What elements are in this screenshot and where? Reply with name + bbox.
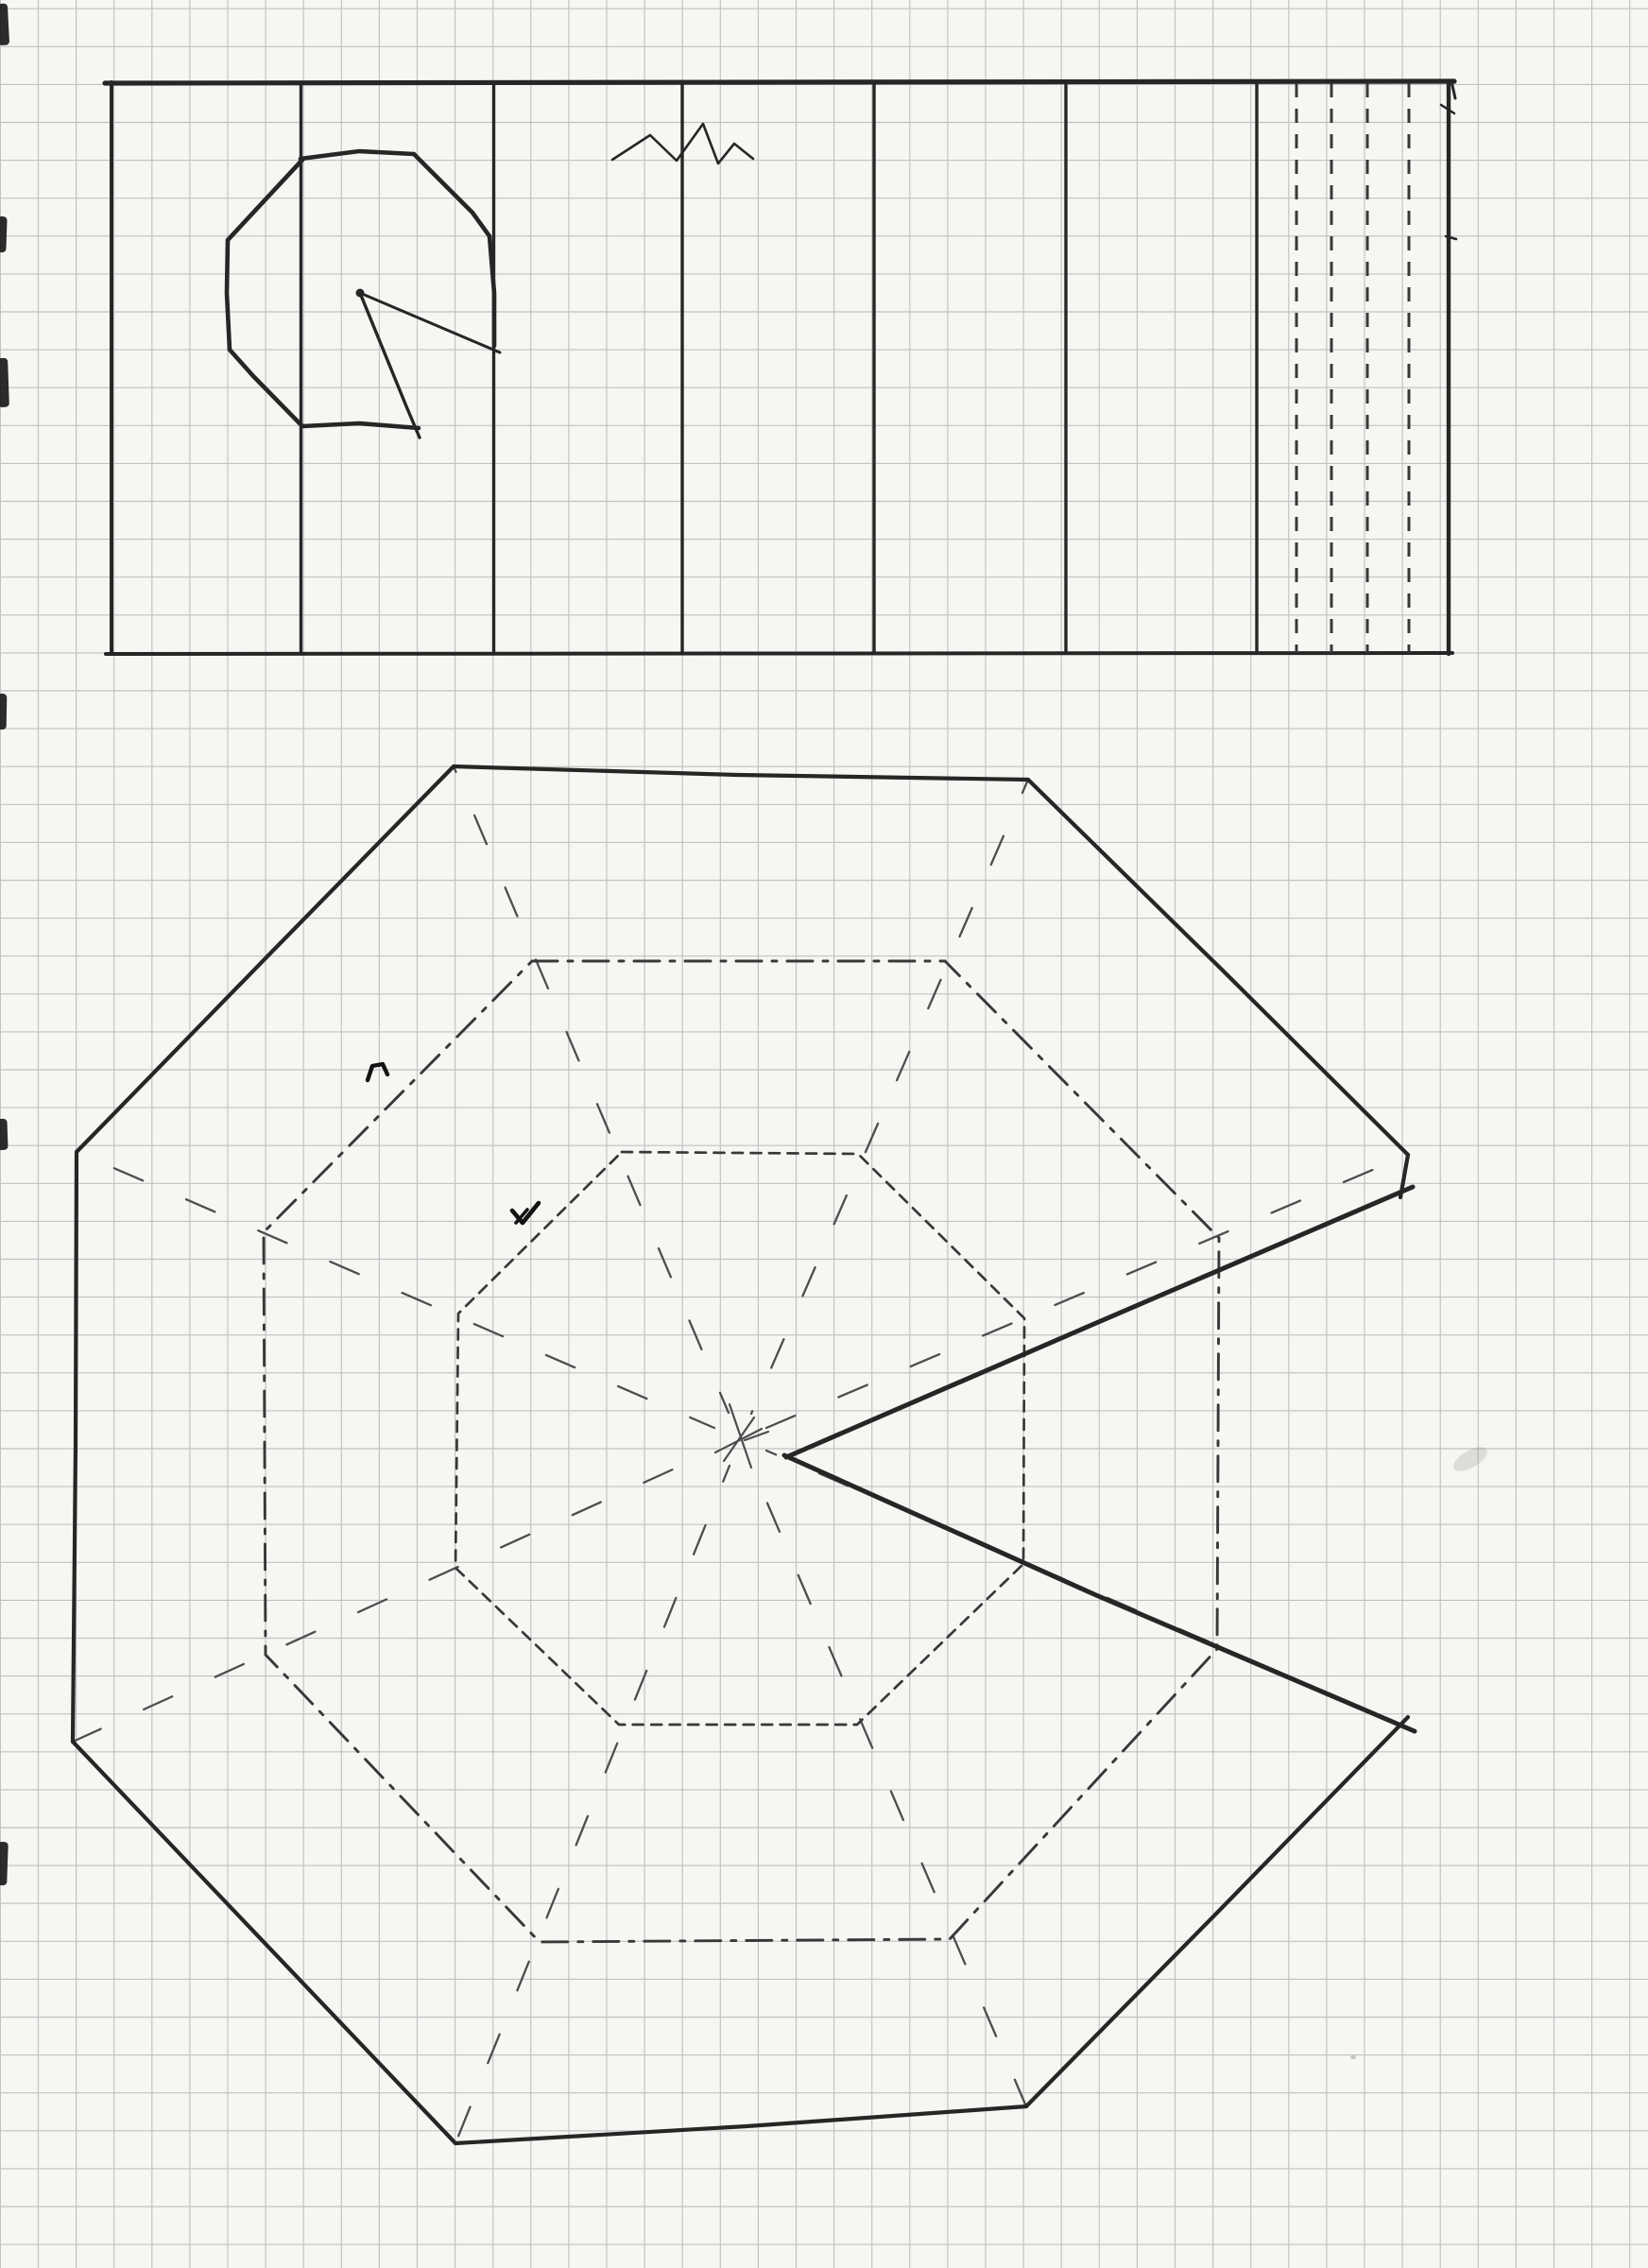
scanned-drawing-page [0,0,1648,2268]
paper-background [0,0,1648,2268]
profile-center-dot [356,289,365,298]
edge-smudge-mark [0,1119,9,1150]
development-border-top-edge [105,81,1454,83]
development-border-bottom-edge [106,653,1452,654]
edge-smudge-mark [0,216,8,252]
edge-smudge-mark [0,694,7,730]
graphite-smudge [1350,2055,1356,2059]
drawing-svg [0,0,1648,2268]
